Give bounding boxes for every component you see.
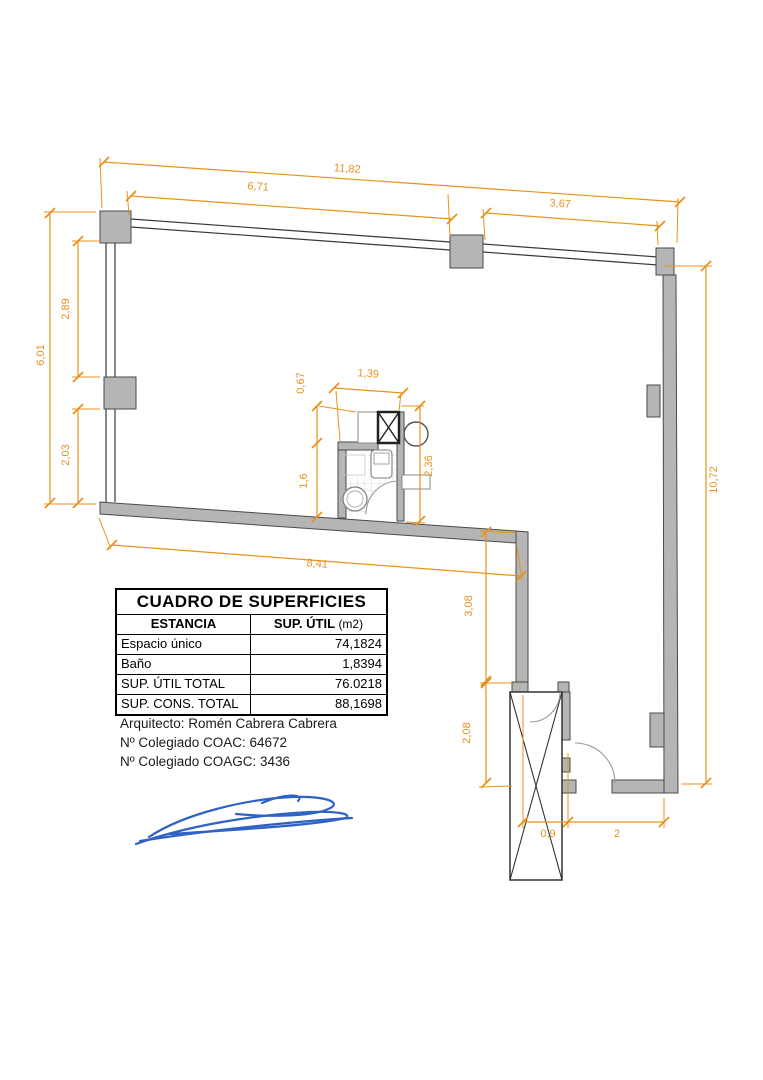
dim-top-right: 3,67 [549,197,571,210]
floor-plan-sheet: 11,82 6,71 3,67 6,01 2,89 2,03 10,72 0,6… [0,0,763,1080]
row-label: Baño [117,655,251,674]
table-row-sup-util-total: SUP. ÚTIL TOTAL 76.0218 [117,675,386,695]
surface-table-header-row: ESTANCIA SUP. ÚTIL (m2) [117,615,386,635]
vent-shaft [358,412,399,443]
dim-left-total: 6,01 [35,344,47,365]
pillar-top-middle [450,235,483,268]
shaft-niche [358,412,378,443]
dim-line-top-total [104,162,680,202]
dim-top-total: 11,82 [333,162,360,176]
dim-entry-height: 2,08 [461,722,473,743]
table-row-bano: Baño 1,8394 [117,655,386,675]
bath-wall-left [338,450,346,518]
table-row-sup-cons-total: SUP. CONS. TOTAL 88,1698 [117,695,386,714]
floor-plan-drawing: 11,82 6,71 3,67 6,01 2,89 2,03 10,72 0,6… [0,0,763,1080]
dim-line-top-left [131,196,452,219]
surface-table-title: CUADRO DE SUPERFICIES [117,590,386,615]
wall-stub-core-left [512,682,528,692]
stair-core [510,692,615,880]
architect-coac: Nº Colegiado COAC: 64672 [120,733,337,752]
dim-right-total: 10,72 [708,466,720,494]
dim-shaft-depth: 0,67 [295,372,307,393]
dim-bath-width: 1,39 [357,367,379,380]
pillar-top-right [656,248,674,275]
row-label: SUP. CONS. TOTAL [117,695,251,714]
header-sup-util: SUP. ÚTIL (m2) [251,615,386,634]
row-label: SUP. ÚTIL TOTAL [117,675,251,694]
architect-info: Arquitecto: Romén Cabrera Cabrera Nº Col… [120,714,337,771]
dim-top-left: 6,71 [247,180,269,193]
entry-door-arc [575,743,615,783]
signature [136,796,352,844]
pillar-left-middle [104,377,136,409]
dim-line-bath-width [334,388,403,393]
wall-entry-bottom [612,780,664,793]
architect-coagc: Nº Colegiado COAGC: 3436 [120,752,337,771]
dim-line-top-right [486,213,660,226]
pilaster-right-upper [647,385,660,417]
pillar-top-left [100,211,131,243]
dim-bath-height: 1,6 [298,473,310,488]
glazing-top-right [483,244,658,257]
wall-stub-core-right [558,682,569,692]
glazing-top-right-inner [483,252,658,265]
surface-table: CUADRO DE SUPERFICIES ESTANCIA SUP. ÚTIL… [115,588,388,716]
pilaster-right-lower [650,713,664,747]
column-circle [404,422,428,446]
glazing-left-lower [106,409,115,502]
dim-left-lower: 2,03 [60,444,72,465]
header-sup-util-bold: SUP. ÚTIL [274,616,335,631]
row-value: 76.0218 [251,675,386,694]
dim-step-height: 3,08 [463,595,475,616]
glazing-left-upper [106,243,115,377]
row-value: 74,1824 [251,635,386,654]
dim-bath-total-height: 2,36 [423,455,435,476]
dim-left-upper: 2,89 [60,298,72,319]
row-value: 1,8394 [251,655,386,674]
dim-bottom-width: 8,41 [306,557,328,570]
header-sup-util-unit: (m2) [338,617,363,631]
table-row-espacio-unico: Espacio único 74,1824 [117,635,386,655]
dim-core-width: 0,9 [540,828,555,840]
dim-entry-width: 2 [614,828,620,840]
row-value: 88,1698 [251,695,386,714]
wall-right [663,275,678,793]
header-estancia: ESTANCIA [117,615,251,634]
architect-name: Arquitecto: Romén Cabrera Cabrera [120,714,337,733]
wall-bottom-sloped [100,502,516,543]
row-label: Espacio único [117,635,251,654]
